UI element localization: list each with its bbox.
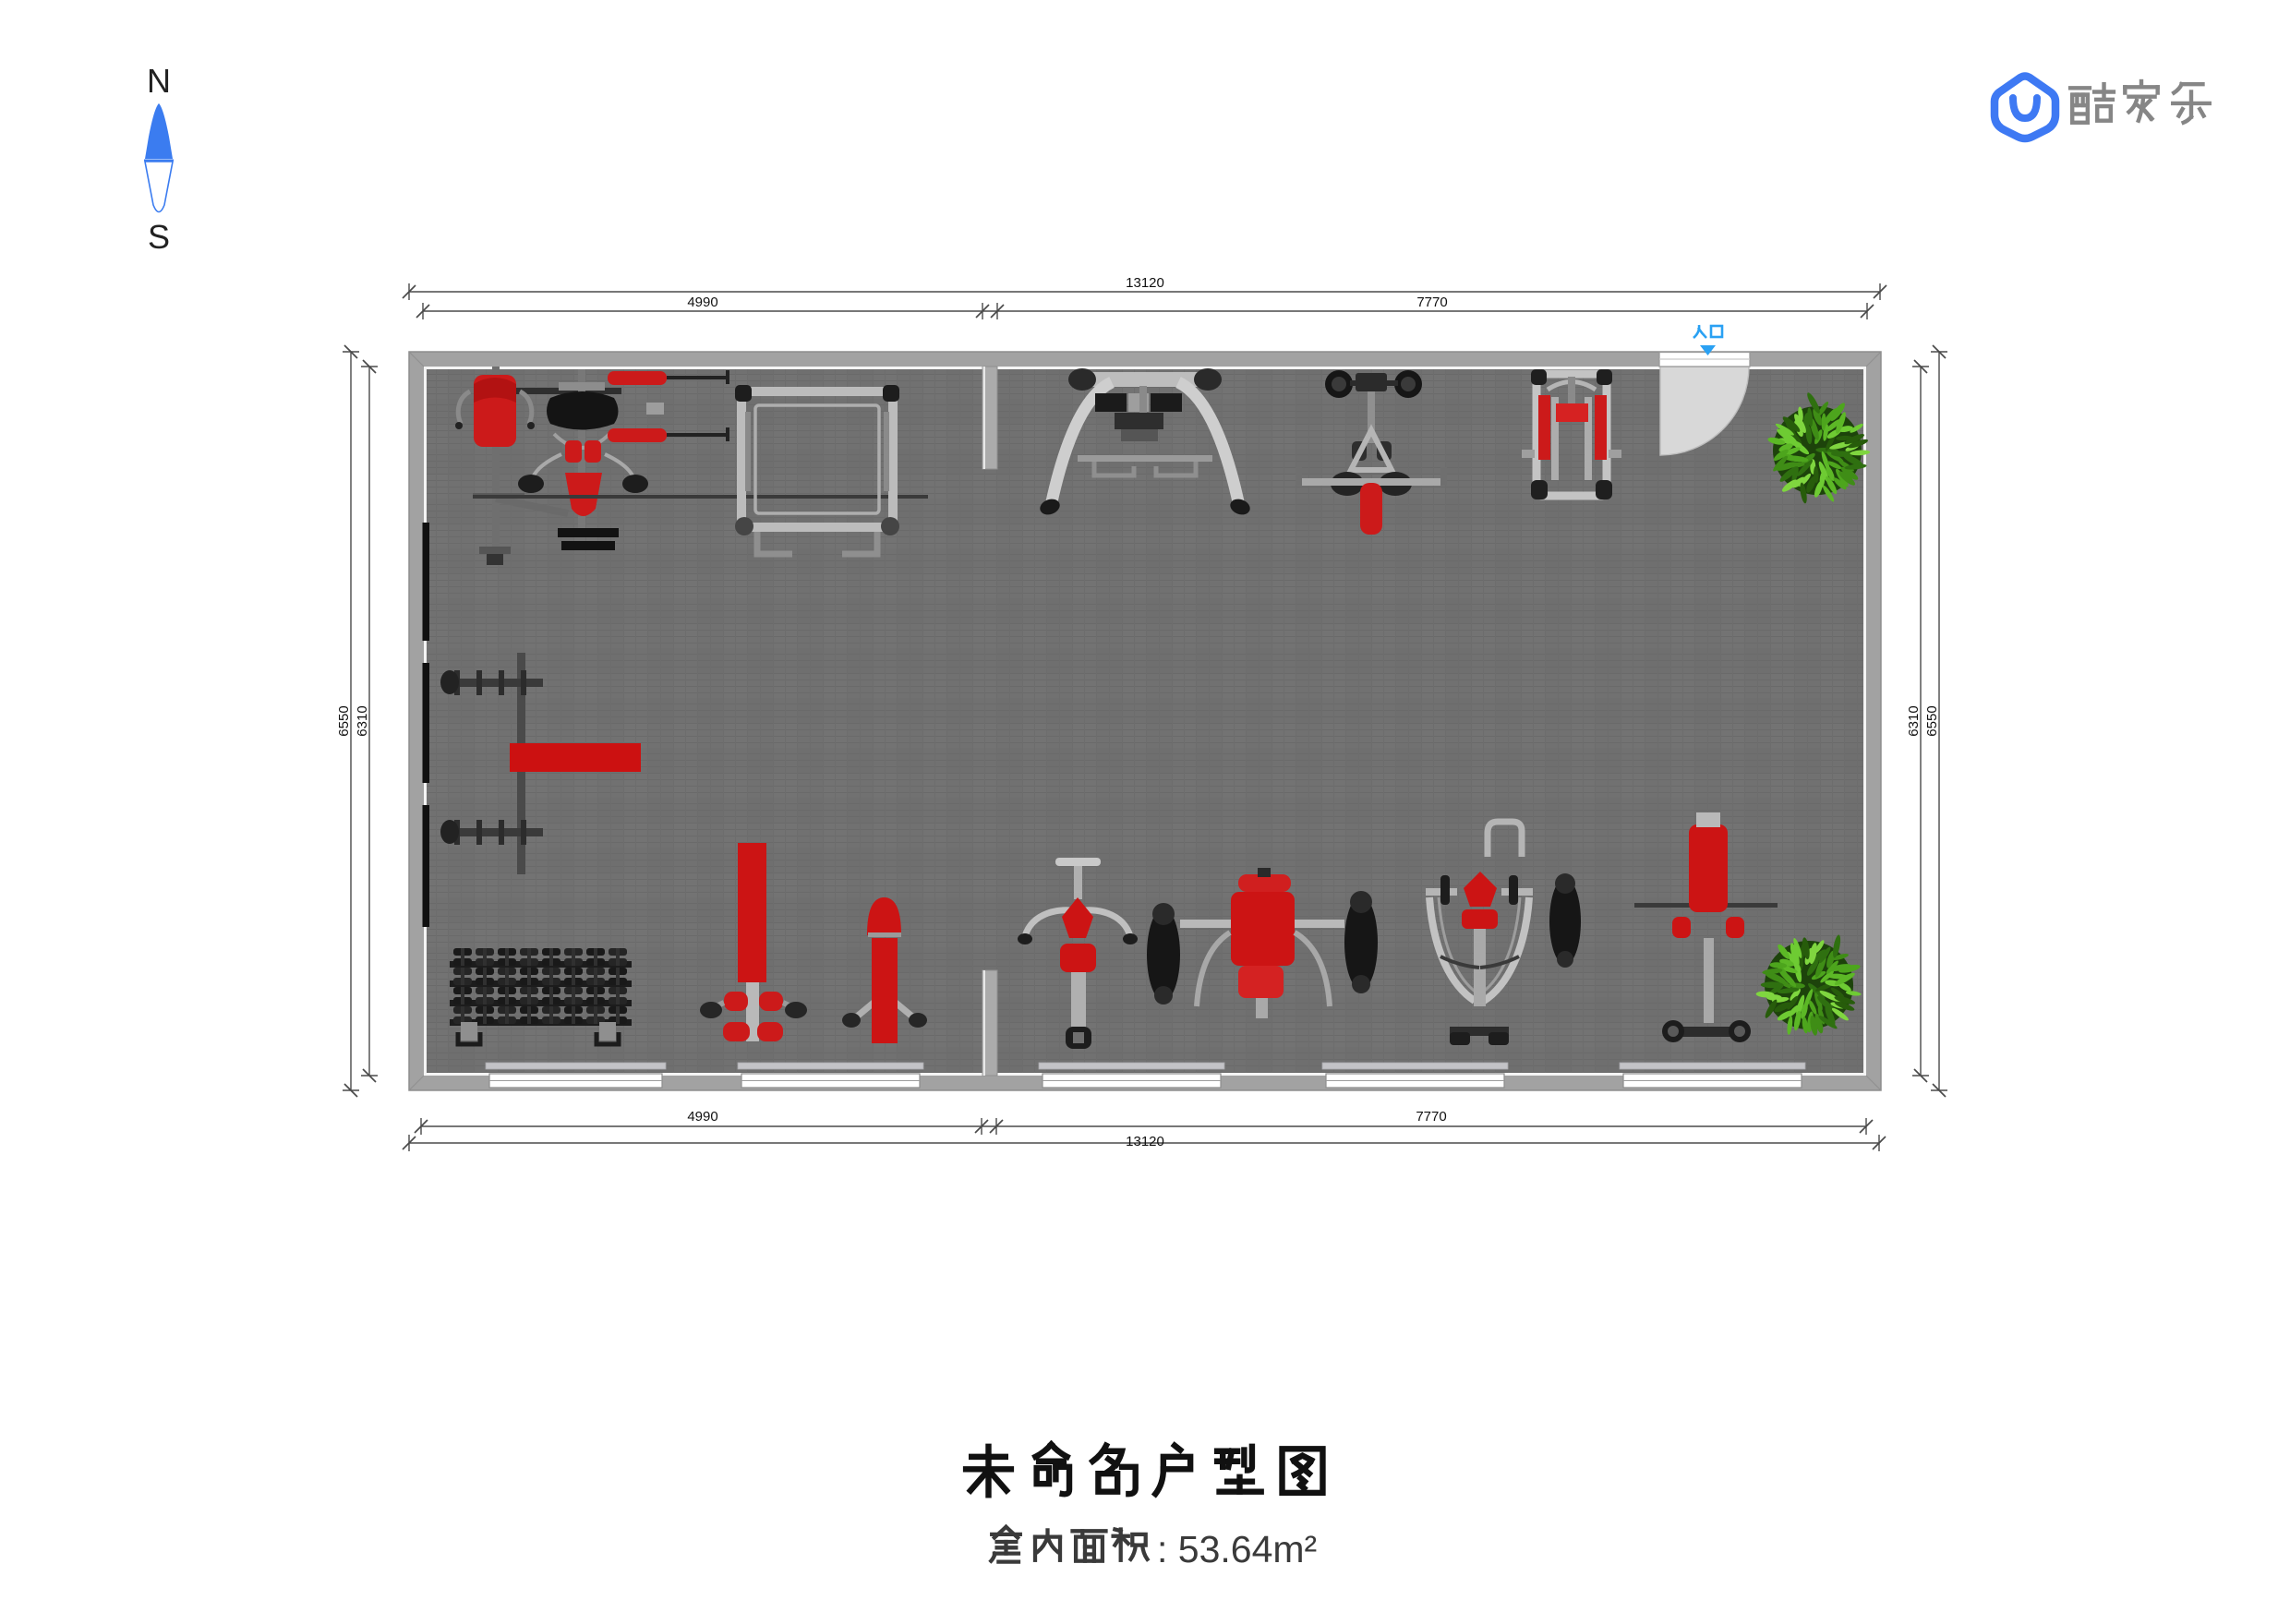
svg-text:6310: 6310 [355, 705, 370, 736]
svg-text:13120: 13120 [1126, 275, 1164, 291]
svg-text:4990: 4990 [687, 1109, 717, 1125]
svg-text:7770: 7770 [1416, 1109, 1446, 1125]
svg-text:6550: 6550 [1924, 705, 1940, 736]
svg-text:7770: 7770 [1416, 295, 1447, 310]
svg-text:: 53.64m²: : 53.64m² [1157, 1528, 1317, 1570]
svg-text:6310: 6310 [1906, 705, 1922, 736]
svg-text:6550: 6550 [336, 705, 352, 736]
svg-text:13120: 13120 [1126, 1134, 1164, 1149]
svg-text:N: N [147, 62, 171, 100]
svg-text:4990: 4990 [687, 295, 717, 310]
svg-text:S: S [148, 218, 170, 256]
